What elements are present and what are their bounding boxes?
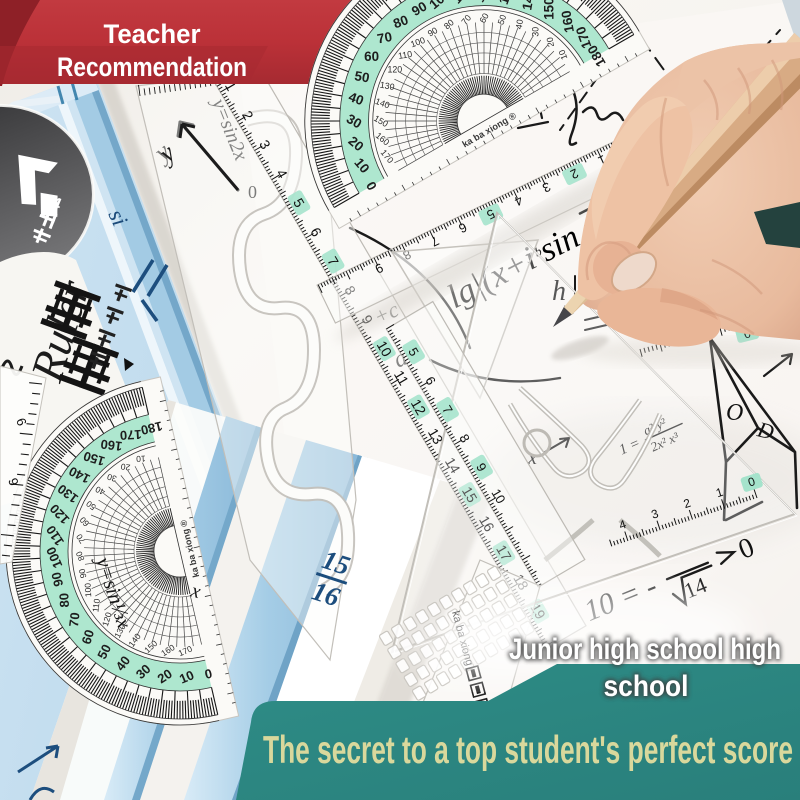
svg-text:40: 40 — [514, 18, 526, 29]
svg-text:110: 110 — [90, 598, 102, 613]
svg-text:Recommendation: Recommendation — [57, 52, 247, 82]
svg-text:30: 30 — [531, 27, 541, 37]
svg-text:20: 20 — [120, 462, 131, 473]
svg-text:160: 160 — [100, 436, 123, 454]
svg-text:100: 100 — [83, 582, 94, 597]
svg-text:120: 120 — [387, 65, 402, 75]
svg-text:school: school — [604, 670, 689, 703]
svg-text:10: 10 — [136, 454, 146, 464]
svg-text:20: 20 — [544, 36, 556, 47]
svg-text:70: 70 — [66, 612, 83, 628]
svg-text:Junior high school high: Junior high school high — [509, 633, 781, 666]
svg-text:70: 70 — [376, 29, 393, 46]
svg-text:The secret to a top student's: The secret to a top student's perfect sc… — [263, 729, 793, 772]
svg-text:150: 150 — [542, 0, 557, 20]
svg-text:Teacher: Teacher — [104, 19, 201, 49]
svg-text:O: O — [726, 400, 743, 426]
svg-text:60: 60 — [364, 49, 379, 64]
svg-text:80: 80 — [56, 593, 72, 608]
svg-text:50: 50 — [353, 68, 370, 85]
svg-text:170: 170 — [120, 427, 142, 443]
